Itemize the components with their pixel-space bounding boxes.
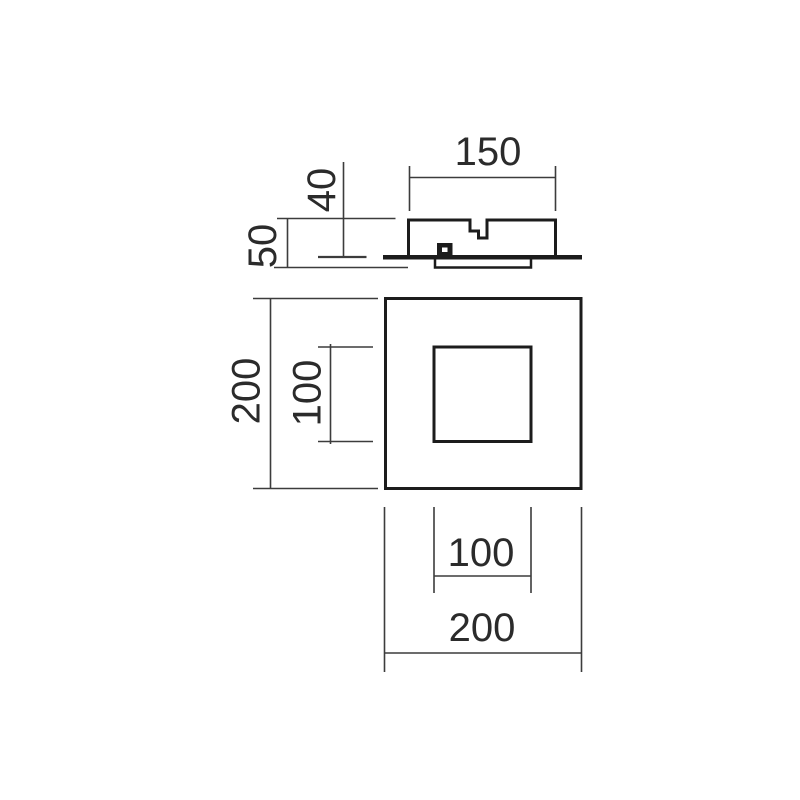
dim-label-side-width: 150 — [455, 130, 522, 174]
mounting-plate-edge — [383, 255, 582, 260]
side-total-height-dimension: 50 — [241, 219, 408, 269]
bottom-dimensions: 100 200 — [385, 507, 582, 672]
drawing-canvas: 150 40 50 — [0, 0, 800, 800]
technical-dimension-drawing: 150 40 50 — [0, 0, 800, 800]
dim-label-front-inner-height: 100 — [286, 360, 330, 427]
bottom-outer-width-dimension: 200 — [385, 606, 582, 653]
dim-label-side-total-height: 50 — [241, 224, 285, 269]
dim-label-outer-width: 200 — [449, 606, 516, 650]
terminal-block-opening — [442, 248, 448, 253]
terminal-block — [437, 243, 453, 256]
side-view: 150 40 50 — [241, 130, 582, 268]
dim-label-inner-width: 100 — [448, 531, 515, 575]
side-width-dimension: 150 — [410, 130, 556, 211]
fixture-body-outline — [409, 220, 556, 256]
front-inner-height-dimension: 100 — [286, 344, 374, 444]
side-recess-height-dimension: 40 — [300, 162, 367, 257]
outer-square — [386, 299, 582, 489]
bottom-inner-width-dimension: 100 — [434, 531, 531, 576]
front-view: 200 100 — [225, 299, 582, 489]
dim-label-side-recess-height: 40 — [300, 168, 344, 213]
inner-square — [434, 347, 531, 442]
dim-label-front-outer-height: 200 — [225, 358, 269, 425]
